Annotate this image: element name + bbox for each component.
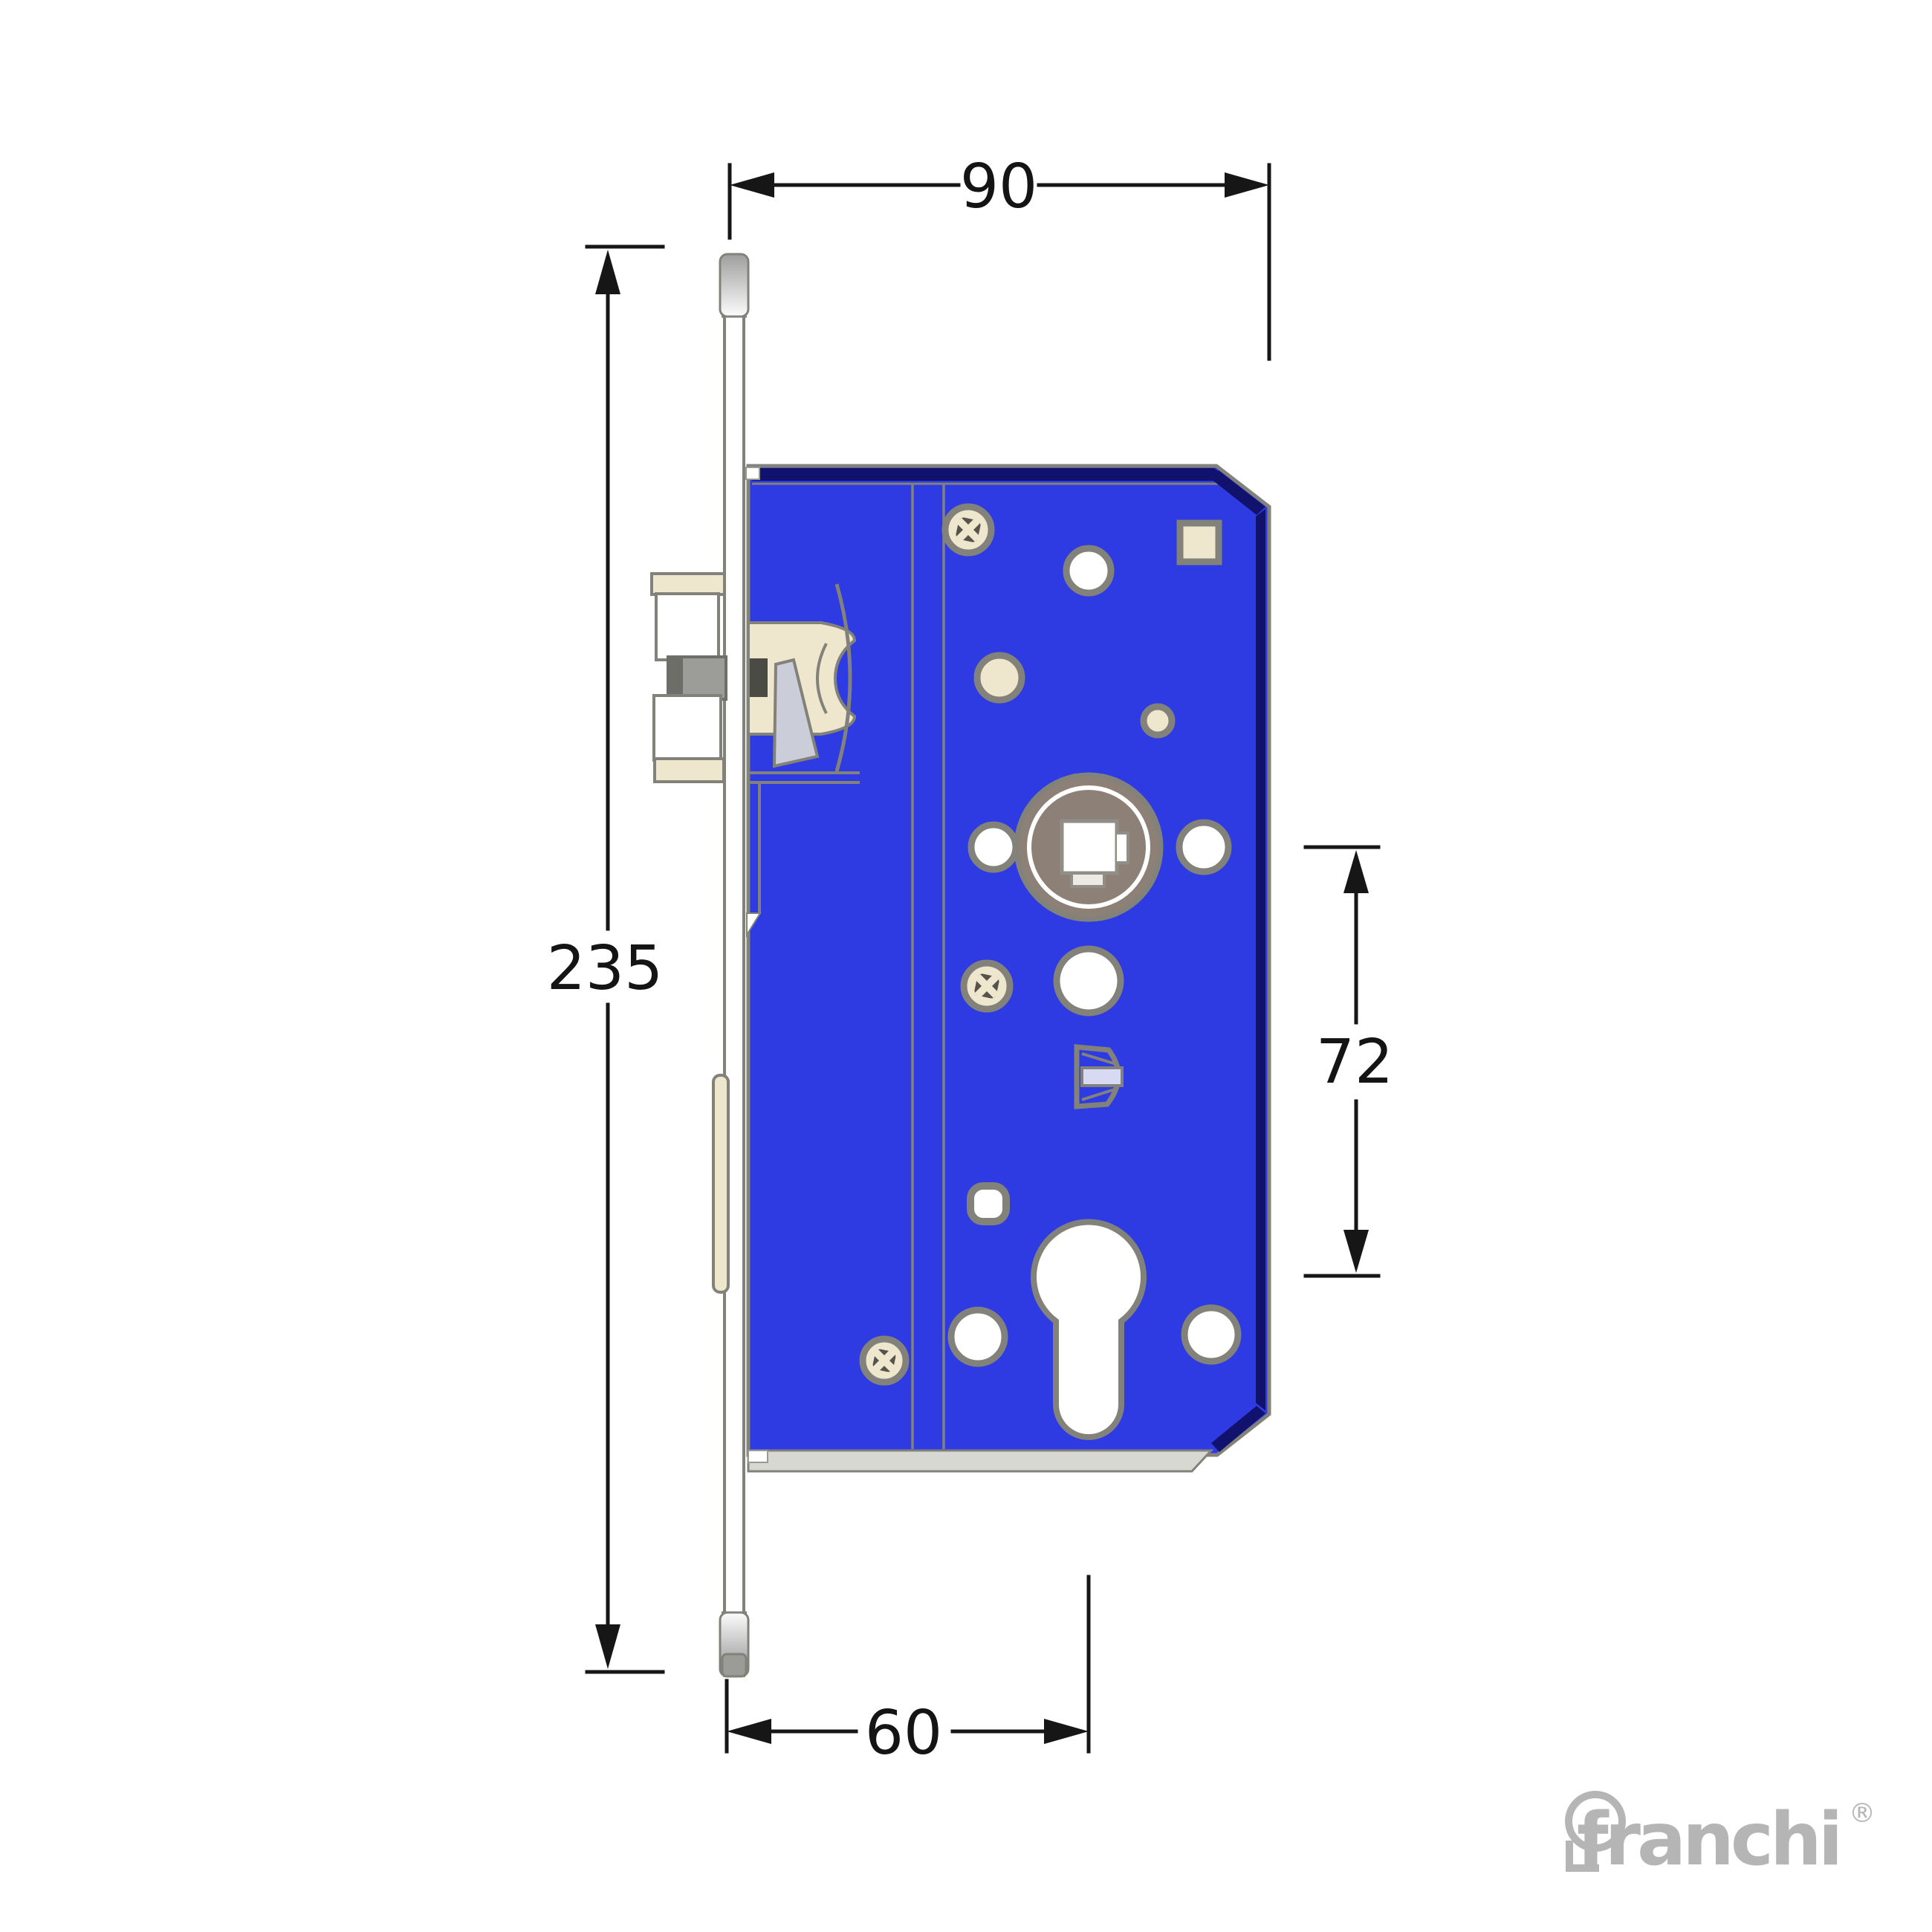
- hole-cream-small: [1144, 707, 1172, 735]
- case-top-shadow: [752, 468, 1231, 481]
- hole-right-of-hub: [1179, 823, 1228, 872]
- dimension-centres: 72: [1306, 847, 1393, 1276]
- stop-lever-bar: [1082, 1068, 1122, 1086]
- dimension-backset: 60: [727, 1577, 1089, 1769]
- arrow-up-icon: [595, 250, 620, 294]
- dim-label-total-height: 235: [547, 933, 664, 1004]
- lock-drawing-svg: 90 235 72: [0, 0, 1932, 1932]
- hole-left-of-cylinder: [951, 1310, 1005, 1364]
- dim-label-total-width: 90: [960, 152, 1037, 222]
- case-plate: [748, 466, 1269, 1455]
- hole-below-hub: [1057, 949, 1121, 1013]
- latch-top-flange: [652, 574, 724, 594]
- faceplate-strip: [724, 256, 744, 1676]
- hole-square-top-right: [1180, 523, 1219, 562]
- hub-clip: [1117, 833, 1128, 863]
- latch-slot: [750, 658, 768, 697]
- latch-upper-body: [656, 594, 719, 660]
- technical-drawing-page: 90 235 72: [0, 0, 1932, 1932]
- case-bottom-flange: [748, 1450, 1211, 1471]
- arrow-down-icon: [1343, 1230, 1369, 1273]
- dim-label-centres: 72: [1316, 1027, 1393, 1098]
- arrow-right-icon: [1044, 1719, 1089, 1744]
- brand-name: franchi: [1577, 1798, 1839, 1882]
- screw-icon-mid-left: [964, 963, 1010, 1009]
- faceplate-end-block: [722, 1654, 746, 1676]
- hub-square-hole: [1062, 821, 1117, 873]
- dimension-total-height: 235: [547, 247, 664, 1672]
- hole-right-of-cylinder: [1184, 1308, 1238, 1361]
- deadbolt-edge: [713, 1075, 728, 1292]
- faceplate: [720, 254, 748, 1676]
- case-notch-top-left: [746, 467, 759, 479]
- arrow-left-icon: [730, 172, 774, 198]
- dim-label-backset: 60: [865, 1698, 942, 1769]
- latch-lower-body: [654, 696, 721, 760]
- arrow-right-icon: [1225, 172, 1269, 198]
- arrow-up-icon: [1343, 850, 1369, 893]
- hole-cream-upper: [977, 655, 1022, 700]
- case-right-shadow: [1256, 509, 1265, 1410]
- screw-icon-top-left: [945, 507, 991, 553]
- dimension-total-width: 90: [730, 152, 1269, 359]
- spindle-hub: [1017, 775, 1161, 919]
- hub-tab: [1072, 873, 1104, 886]
- registered-mark: ®: [1849, 1798, 1876, 1829]
- arrow-down-icon: [595, 1624, 620, 1669]
- faceplate-top-cap: [720, 254, 748, 317]
- screw-icon-bottom: [863, 1339, 906, 1382]
- hole-left-of-hub: [971, 825, 1016, 869]
- case-notch-bottom-left: [748, 1450, 768, 1462]
- latch-bottom-flange: [655, 759, 724, 782]
- hole-round-top: [1066, 548, 1111, 593]
- latch-center-shadow: [668, 657, 683, 699]
- latch-bolt-head: [652, 574, 726, 782]
- lock-assembly: [652, 254, 1269, 1676]
- arrow-left-icon: [727, 1719, 771, 1744]
- hole-square-ring: [970, 1186, 1006, 1222]
- brand-logo: franchi ®: [1569, 1795, 1876, 1882]
